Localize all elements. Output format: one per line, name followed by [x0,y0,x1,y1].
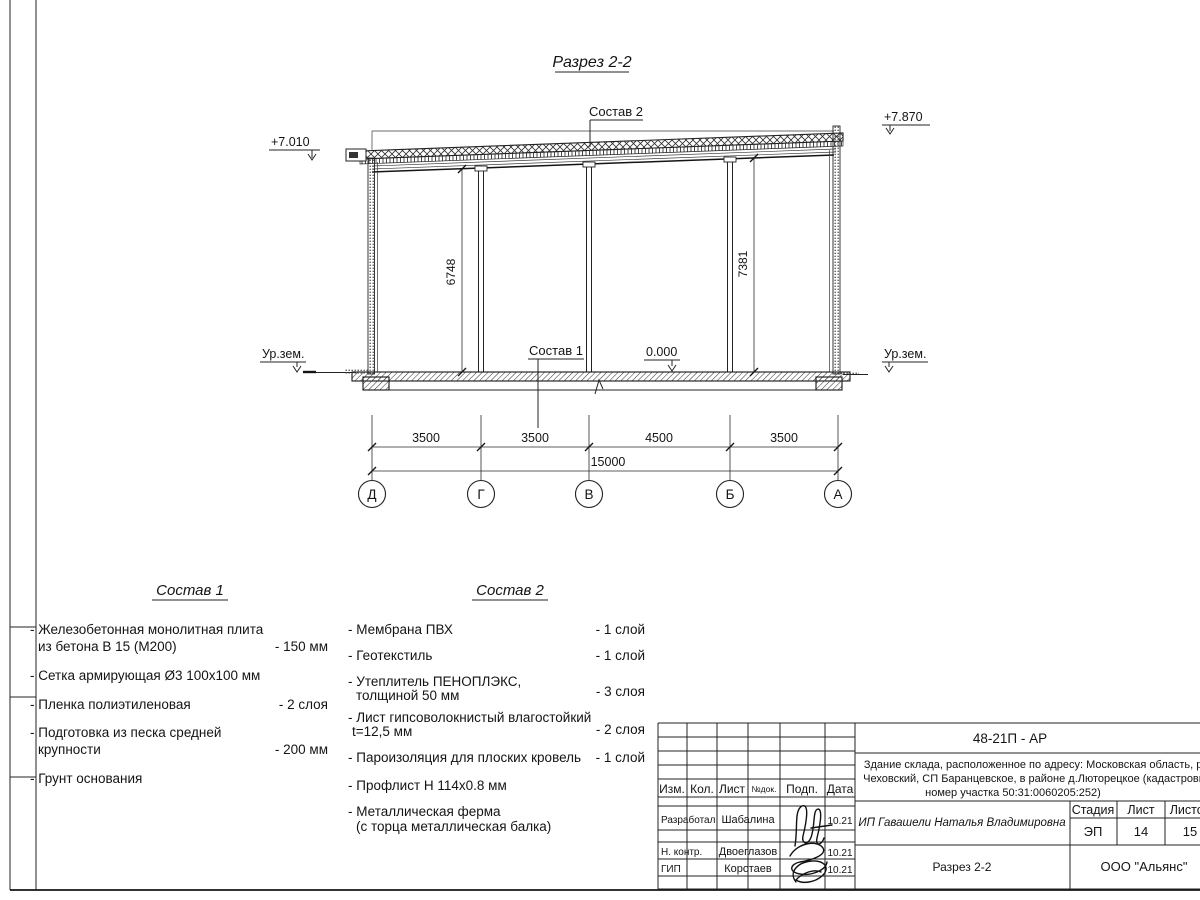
comp1-value: - 200 мм [275,742,328,757]
dim-span-4: 3500 [770,431,798,445]
row-date: 10.21 [827,865,852,876]
col-kol: Кол. [690,782,714,796]
project-desc-line2: Чеховский, СП Баранцевское, в районе д.Л… [863,773,1200,785]
project-desc-line3: номер участка 50:31:0060205:252) [925,787,1101,799]
sheet-label: Лист [1127,803,1154,817]
ground-label-right: Ур.зем. [884,347,926,361]
sheets-label: Листов [1170,803,1200,817]
comp2-item: - Лист гипсоволокнистый влагостойкий [348,710,591,725]
row-name: Коротаев [724,863,772,875]
dim-span-2: 3500 [521,431,549,445]
project-code: 48-21П - АР [973,731,1047,746]
comp2-item: - Пароизоляция для плоских кровель [348,750,581,765]
comp1-item: - Грунт основания [30,771,142,786]
comp2-item: t=12,5 мм [352,724,412,739]
row-role: Н. контр. [661,847,702,858]
company-name: ООО "Альянс" [1101,859,1188,874]
break-mark [595,380,603,394]
axis-label-a: А [833,487,842,502]
callout-sostav1: Состав 1 [529,343,583,358]
elev-right: +7.870 [884,110,923,124]
columns [475,157,736,372]
row-name: Двоеглазов [719,846,778,858]
col-data: Дата [827,782,854,796]
comp1-item: - Железобетонная монолитная плита [30,622,264,637]
left-wall-panel [368,158,375,374]
row-name: Шабалина [721,814,775,826]
stage-value: ЭП [1084,824,1103,839]
comp1-value: - 150 мм [275,639,328,654]
row-role: ГИП [661,864,681,875]
stage-label: Стадия [1072,803,1115,817]
comp2-item: - Геотекстиль [348,648,432,663]
comp2-item: - Профлист Н 114х0.8 мм [348,778,507,793]
comp1-value: - 2 слоя [279,697,328,712]
drawing-title-text: Разрез 2-2 [552,54,631,71]
drawing-sheet: Разрез 2-2 [0,0,1200,900]
comp1-item: крупности [38,742,101,757]
height-dimensions: 6748 7381 [444,154,758,376]
col-ndok: №док. [752,784,777,794]
title-block: Изм. Кол. Лист №док. Подп. Дата Разработ… [658,723,1200,889]
composition-1-list: Состав 1 - Железобетонная монолитная пли… [30,582,328,786]
composition-1-title: Состав 1 [156,582,224,599]
composition-2-title: Состав 2 [476,582,544,599]
comp2-item: - Металлическая ферма [348,804,501,819]
client-name: ИП Гавашели Наталья Владимировна [858,817,1065,829]
ground-label-left: Ур.зем. [262,347,304,361]
dim-height-right: 7381 [736,250,750,277]
axis-label-v: В [584,487,593,502]
comp2-value: - 3 слоя [596,684,645,699]
foundation-right [816,377,842,390]
comp2-item: - Утеплитель ПЕНОПЛЭКС, [348,674,521,689]
elev-zero: 0.000 [646,345,677,359]
comp2-value: - 2 слоя [596,722,645,737]
comp1-item: - Пленка полиэтиленовая [30,697,191,712]
comp1-item: из бетона В 15 (М200) [38,639,177,654]
floor-slab [303,369,868,394]
project-desc-line1: Здание склада, расположенное по адресу: … [864,759,1200,771]
sheets-value: 15 [1183,824,1197,839]
comp2-value: - 1 слой [596,648,645,663]
dim-span-3: 4500 [645,431,673,445]
row-date: 10.21 [827,848,852,859]
signature-scribbles [790,806,832,883]
axis-label-d: Д [367,487,376,502]
dim-total: 15000 [591,455,626,469]
drawing-title: Разрез 2-2 [552,54,631,72]
col-podp: Подп. [786,782,818,796]
col-izm: Изм. [659,782,685,796]
axis-label-b: Б [726,487,735,502]
span-dimensions: 3500 3500 4500 3500 15000 [368,415,842,480]
sheet-value: 14 [1134,824,1148,839]
eave-beam-end [349,152,358,158]
elev-left: +7.010 [271,135,310,149]
dim-height-left: 6748 [444,258,458,285]
comp1-item: - Подготовка из песка средней [30,725,221,740]
axis-bubbles: Д Г В Б А [359,481,852,508]
comp2-value: - 1 слой [596,750,645,765]
foundation-left [363,377,389,390]
comp2-value: - 1 слой [596,622,645,637]
comp2-item: толщиной 50 мм [356,688,459,703]
right-wall-panel [833,126,840,374]
dim-span-1: 3500 [412,431,440,445]
callout-sostav2: Состав 2 [589,104,643,119]
doc-name: Разрез 2-2 [933,860,992,874]
section-view: 6748 7381 Состав 2 Состав 1 +7.010 +7.87… [260,104,930,508]
comp1-item: - Сетка армирующая Ø3 100х100 мм [30,668,260,683]
col-list: Лист [719,782,746,796]
composition-2-list: Состав 2 - Мембрана ПВХ - 1 слой - Геоте… [348,582,645,834]
axis-label-g: Г [477,487,485,502]
row-role: Разработал [661,814,716,826]
comp2-item: (с торца металлическая балка) [356,819,551,834]
comp2-item: - Мембрана ПВХ [348,622,453,637]
